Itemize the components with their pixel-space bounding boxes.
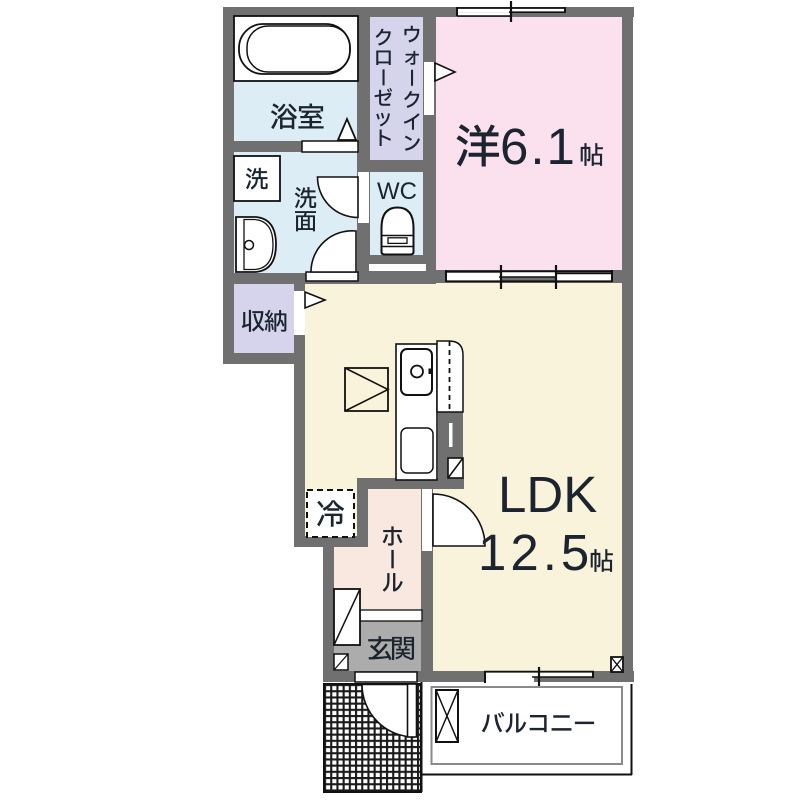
- svg-text:12.5: 12.5: [478, 524, 593, 581]
- svg-text:WC: WC: [377, 178, 417, 205]
- svg-text:LDK: LDK: [498, 466, 597, 523]
- svg-text:6.1: 6.1: [500, 118, 577, 175]
